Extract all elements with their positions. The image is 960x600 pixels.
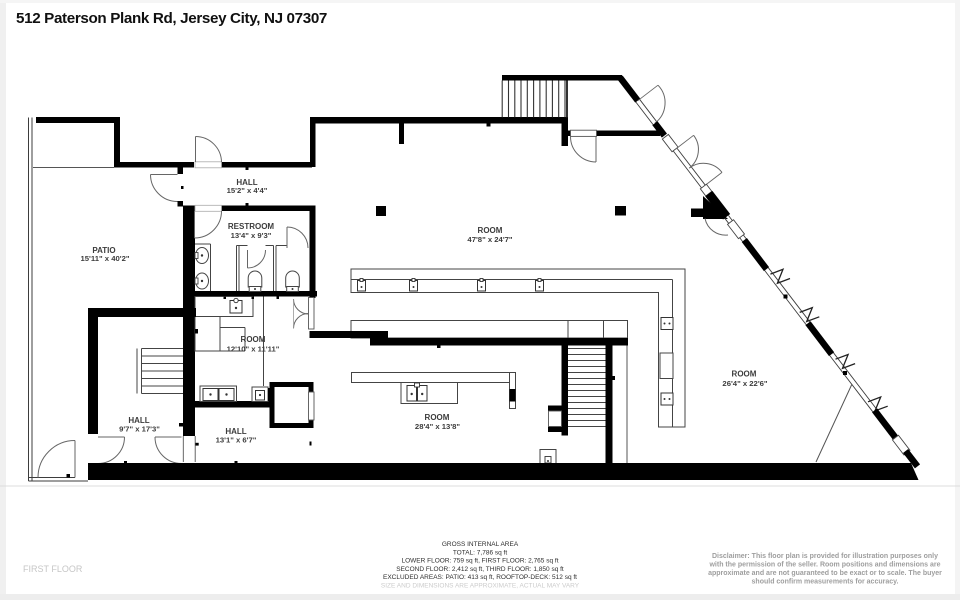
svg-text:26'4" x 22'6": 26'4" x 22'6": [722, 379, 768, 388]
svg-text:with the permission of the sel: with the permission of the seller. Room …: [708, 562, 940, 569]
svg-text:RESTROOM: RESTROOM: [228, 222, 275, 231]
svg-text:ROOM: ROOM: [241, 335, 266, 344]
svg-text:EXCLUDED AREAS: PATIO: 413 sq: EXCLUDED AREAS: PATIO: 413 sq ft, ROOFTO…: [383, 574, 577, 581]
svg-text:13'4" x 9'3": 13'4" x 9'3": [231, 231, 272, 240]
svg-text:12'10" x 11'11": 12'10" x 11'11": [227, 345, 280, 354]
svg-text:9'7" x 17'3": 9'7" x 17'3": [119, 425, 160, 434]
svg-text:ROOM: ROOM: [425, 413, 450, 422]
svg-text:approximate and are not guaran: approximate and are not guaranteed to be…: [708, 570, 942, 577]
svg-text:15'11" x 40'2": 15'11" x 40'2": [81, 254, 130, 263]
svg-text:FIRST FLOOR: FIRST FLOOR: [23, 564, 83, 574]
svg-text:512 Paterson Plank Rd, Jersey: 512 Paterson Plank Rd, Jersey City, NJ 0…: [16, 10, 327, 27]
svg-text:ROOM: ROOM: [478, 226, 503, 235]
svg-text:SIZE AND DIMENSIONS ARE APPROX: SIZE AND DIMENSIONS ARE APPROXIMATE, ACT…: [381, 583, 580, 590]
svg-text:Disclaimer: This floor plan is: Disclaimer: This floor plan is provided …: [712, 553, 938, 560]
svg-text:28'4" x 13'8": 28'4" x 13'8": [415, 422, 461, 431]
svg-text:15'2" x 4'4": 15'2" x 4'4": [227, 186, 268, 195]
svg-text:should confirm measurements fo: should confirm measurements for accuracy…: [752, 579, 899, 586]
svg-text:GROSS INTERNAL AREA: GROSS INTERNAL AREA: [442, 541, 519, 548]
svg-text:TOTAL: 7,786 sq ft: TOTAL: 7,786 sq ft: [453, 549, 508, 556]
svg-text:LOWER FLOOR: 759 sq ft, FIRST: LOWER FLOOR: 759 sq ft, FIRST FLOOR: 2,7…: [401, 558, 558, 565]
svg-text:13'1" x 6'7": 13'1" x 6'7": [216, 436, 257, 445]
svg-text:SECOND FLOOR: 2,412 sq ft, THI: SECOND FLOOR: 2,412 sq ft, THIRD FLOOR: …: [396, 566, 564, 573]
svg-text:47'8" x 24'7": 47'8" x 24'7": [467, 235, 513, 244]
svg-text:ROOM: ROOM: [732, 370, 757, 379]
